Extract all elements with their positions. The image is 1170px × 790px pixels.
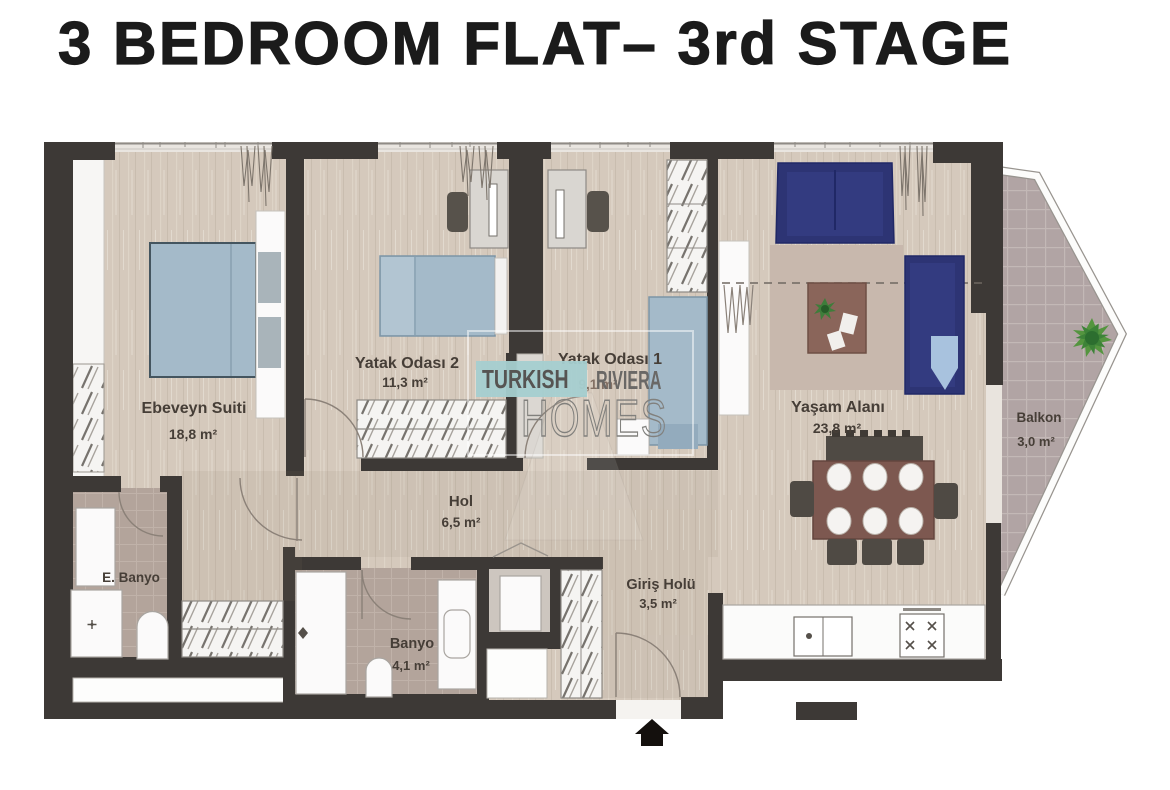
svg-text:Giriş Holü: Giriş Holü	[626, 577, 695, 593]
svg-text:Balkon: Balkon	[1016, 410, 1061, 425]
svg-text:23,8 m²: 23,8 m²	[813, 420, 862, 436]
svg-text:18,8 m²: 18,8 m²	[169, 426, 218, 442]
svg-text:3 BEDROOM FLAT– 3rd STAGE: 3 BEDROOM FLAT– 3rd STAGE	[58, 10, 1010, 77]
svg-text:3,5 m²: 3,5 m²	[639, 596, 677, 611]
svg-text:4,1 m²: 4,1 m²	[392, 658, 430, 673]
svg-text:Yaşam Alanı: Yaşam Alanı	[791, 399, 885, 416]
svg-text:Hol: Hol	[449, 493, 473, 510]
svg-text:3,0 m²: 3,0 m²	[1017, 434, 1055, 449]
svg-text:Ebeveyn Suiti: Ebeveyn Suiti	[142, 400, 247, 417]
svg-text:6,5 m²: 6,5 m²	[441, 515, 481, 530]
svg-text:11,3 m²: 11,3 m²	[382, 375, 428, 390]
svg-text:E. Banyo: E. Banyo	[102, 570, 160, 585]
svg-text:Yatak Odası 2: Yatak Odası 2	[355, 355, 459, 372]
svg-text:Banyo: Banyo	[390, 636, 434, 652]
svg-text:HOMES: HOMES	[521, 389, 667, 447]
